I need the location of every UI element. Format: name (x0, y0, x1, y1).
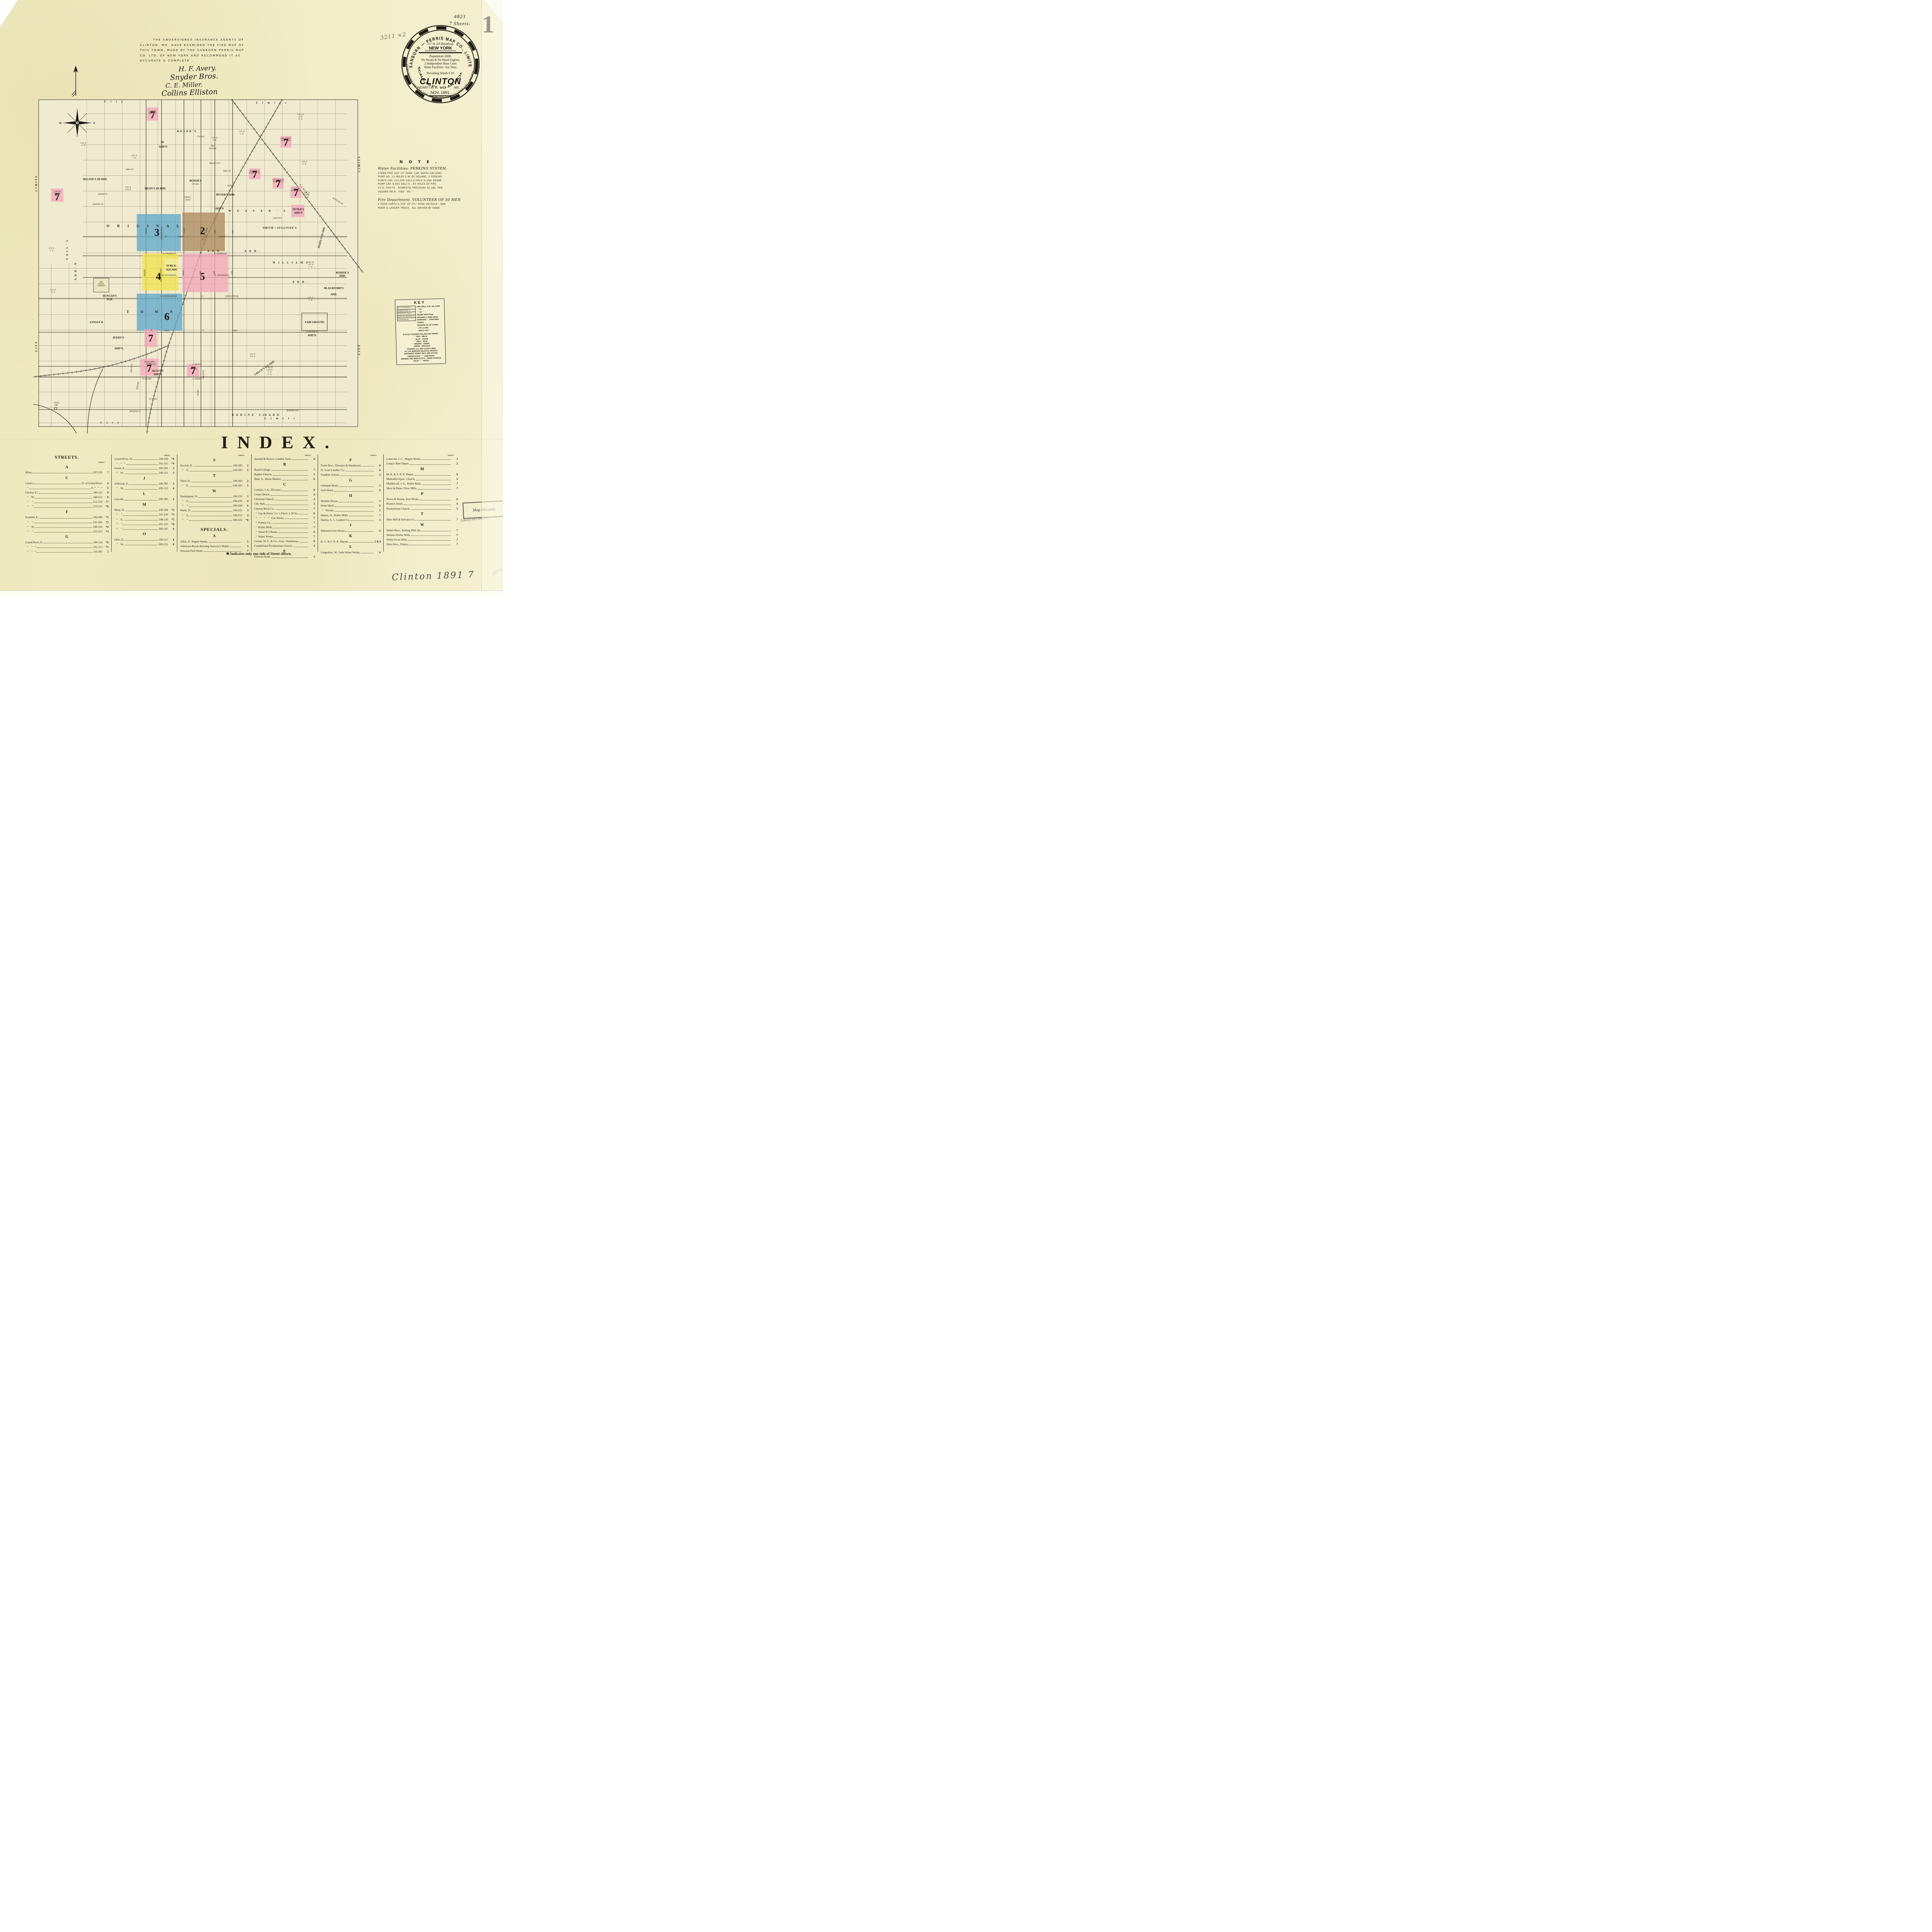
index-entry: “ Street R’y Barns,6 (254, 530, 315, 534)
index-column-3: SHEETSSecond, N.,100-3052 “ S.,100-3055T… (177, 454, 251, 552)
map-label: A D D ' N (74, 262, 77, 281)
map-label: 7 FR. D. (308, 264, 314, 265)
sheet-column-label: SHEET (254, 454, 311, 456)
sheet-column-label: SHEET (321, 454, 377, 456)
map-label: LINGLE & (90, 321, 104, 324)
map-label: ADD'N (215, 207, 224, 210)
map-label: E. FRANKLIN (214, 253, 226, 255)
map-label: CEMETERY (97, 285, 105, 287)
paper-bottom-edge (0, 590, 503, 597)
index-entry: Gerhardt Hotel,5 (321, 484, 381, 487)
index-entry: Tebo Mill & Elevator Co.,7 (386, 518, 458, 521)
map-label: O R I G I N A L (107, 224, 182, 228)
map-label: 7 FR. CH. (297, 114, 304, 116)
map-label: BOYER'S (177, 130, 197, 133)
map-label: MEAN'S 2D ADD. (145, 187, 166, 190)
index-entry: Clinton Brick Co.,7 (254, 507, 315, 510)
map-label: 7 FR. D. (308, 297, 314, 299)
map-label: R. MILL. (146, 363, 153, 365)
key-symbol-row: STEAM BOILER (398, 318, 415, 321)
map-label: LIMITS (358, 155, 361, 172)
index-entry: “ “101-305*2 (25, 520, 109, 524)
stamp-hose: 2 Independent Hose Carts (425, 62, 457, 65)
index-entry: “ “212-230*7 (25, 500, 109, 503)
map-label: SQUARE (166, 268, 177, 271)
index-entry: “ Water Works,7 (254, 535, 315, 538)
map-label: 5 (200, 271, 205, 282)
index-letter: C (25, 476, 109, 480)
index-entry: “ “ “ “ Gas Works,7 (254, 516, 315, 520)
sheet-column-label: SHEET (180, 454, 245, 456)
index-entry: Baptist Church,5 (254, 473, 315, 476)
stamp-county: HENRY CO. (417, 85, 434, 89)
index-column-4: SHEETAurand & Brown, Lumber Yard,6BBaird… (251, 454, 318, 552)
map-label: BOYER'S (190, 179, 202, 182)
map-label: ROLL'G MILL (281, 139, 291, 141)
note-line: 2 HOSE CARTS & 550' OF 2½" HOSE ON EACH … (378, 203, 461, 206)
index-entry: Centre Block,4 (254, 493, 315, 496)
index-entry: Franklin, E.,100-306*5 (25, 515, 109, 519)
map-label: 6 ″ B. (299, 118, 303, 120)
map-label: GREEN (218, 236, 225, 238)
index-entry: Western Roller Mills,7 (386, 533, 458, 537)
index-entry: Blatt, S., Horse Market,6 (254, 477, 315, 481)
index-entry: “ “101-315*3 (25, 530, 109, 533)
map-label: A D D . (293, 281, 309, 284)
note-line: PUMPS CAP. 125,000 GALL'S EACH & ONE DEA… (378, 180, 461, 182)
map-label: 2 FR. D. (49, 247, 55, 249)
map-label: 2 FR. B. (250, 355, 255, 357)
map-label: FAIR GROUND (305, 321, 324, 324)
index-entry: Green, E.,100-3052 (114, 466, 174, 470)
index-entry: Lebscom, J. C., Wagon Works,5 (386, 457, 458, 461)
index-letter: M (386, 467, 458, 471)
map-label: ADD. (339, 274, 346, 277)
map-label: POTTERY CO. (291, 190, 301, 192)
map-label: ALLEN'S (152, 369, 163, 372)
map-label: E (94, 122, 95, 125)
index-entry: “ Woods,2 (321, 509, 381, 512)
index-entry: Grand River, W.,100-230*6 (114, 457, 174, 461)
key-symbol-table: NO. OF STORIES 3SHINGLE ROOF ×COMPOST'N … (397, 306, 416, 321)
key-title: KEY (397, 300, 442, 305)
note-line: 55 D. HYD'TS . DOMESTIC PRESSURE 40 LBS.… (378, 187, 461, 189)
map-label: BLACKFORD'S (324, 287, 344, 290)
index-letter: J (114, 476, 174, 481)
map-label: MEAN'S (185, 196, 191, 198)
statement-lines: THE UNDERSIGNED INSURANCE AGENTS OFCLINT… (140, 38, 260, 62)
map-label: 6 ″ B. (303, 163, 307, 165)
note-line: SQUARE INCH . FIRE ″ 80 ″ ″ (378, 191, 461, 193)
note-title: N O T E . (378, 160, 461, 164)
index-entry: “ “ “116-3055 (25, 550, 109, 553)
map-label: ADD. (331, 293, 337, 296)
note-line: PUMP HO. 1¼ MILES S.W. OF SQUARE, 2 PERK… (378, 176, 461, 178)
map-label: W. HENRY (142, 378, 152, 380)
index-entry: Grand River, E.,100-114*6 (25, 541, 109, 544)
index-letter: I (321, 523, 381, 527)
map-label: STAND (54, 402, 59, 404)
map-label: V A I L ' S (66, 240, 69, 260)
map-label: 7 (148, 333, 153, 344)
key-row: WINDOWS ″ - SHUTTERS (417, 318, 443, 321)
index-entry: “ W.,100-2116 (25, 495, 109, 499)
index-entry: Middelcoff, J. G., Roller Mills,7 (386, 482, 458, 485)
map-label: 1 BR. CH. (307, 261, 315, 263)
index-entry: Lincoln,100-3052 (114, 497, 174, 501)
index-letter: L (114, 492, 174, 496)
index-letter: S (180, 458, 248, 463)
map-label: W (59, 122, 62, 125)
index-entry: “ W.,100-3154 (114, 486, 174, 490)
index-entry: “ S.,100-3055 (180, 484, 248, 487)
key-row: STABLE (417, 321, 443, 324)
map-label: B O D I N E ' S 2D A D D (232, 413, 280, 417)
map-label: E. (202, 329, 204, 332)
index-entry: Clinton, E.,100-1156 (25, 491, 109, 494)
map-label: LINCOLN (273, 217, 282, 219)
map-label: PUBLIC (167, 264, 177, 267)
index-column-1: STREETS.SHEETAAllen,207-2267CCentre,N. o… (22, 454, 111, 552)
map-label: ADD'N (159, 145, 167, 148)
map-label: ELEVATOR CO. (249, 172, 260, 174)
map-label: 2 ″ B. (133, 157, 137, 159)
stamp-town: CLINTON (420, 77, 461, 86)
index-entry: Second, N.,100-3052 (180, 464, 248, 467)
index-columns: STREETS.SHEETAAllen,207-2267CCentre,N. o… (22, 454, 464, 552)
map-label: 4 FR. D. (304, 194, 310, 196)
signatures: H. F. Avery.Snyder Bros.C. E. Miller.Col… (140, 64, 260, 96)
index-column-5: SHEETFFoote Bros., Elevator & Warehouse,… (318, 454, 383, 552)
index-entry: Main, N.,100-304*2 (114, 508, 174, 512)
map-label: CITY (35, 340, 38, 352)
map-label: PETER'S (293, 208, 304, 211)
map-label: COLLEGE (197, 136, 205, 138)
key-row: ″ 2ND & 4TH ″ (417, 329, 443, 332)
index-letter: H (321, 494, 381, 498)
index-entry: Wise Bros., Pottery,7 (386, 543, 458, 546)
note-line: Water Facilities: PERKINS SYSTEM. (378, 167, 461, 171)
note-line: HOOK & LADDER TRUCK , ALL DRIVEN BY HAND… (378, 207, 461, 209)
map-label: BRICK CO. (149, 112, 156, 114)
map-label: ADD'N (153, 373, 162, 376)
index-letter: K (321, 534, 381, 538)
map-label: 6 ″ B. (309, 266, 313, 268)
statement-line: THE UNDERSIGNED INSURANCE AGENTS OF (140, 38, 260, 41)
index-letter: B (254, 463, 315, 467)
map-label: W. TEBO (149, 398, 157, 400)
index-entry: City Hall,5 (254, 502, 315, 505)
map-label: McLANE'S 2D ADD. (83, 178, 107, 181)
map-label: 2 BR. D. (304, 192, 310, 194)
index-letter: O (114, 532, 174, 536)
index-entry: Ft. Scott Lumber Co.,6 (321, 468, 381, 472)
index-letter: A (25, 465, 109, 469)
map-label: 6 ″ B. (305, 196, 309, 198)
index-letter: F (321, 458, 381, 463)
map-label: 2 FR. D. (50, 289, 56, 291)
index-section-header: SPECIALS. (180, 527, 248, 532)
map-label: 3 FR. B. (125, 189, 131, 190)
index-letter: G (321, 478, 381, 483)
map-label: 2 ″ D. (268, 371, 272, 373)
map-label: 3RD (214, 230, 216, 234)
key-color-list: B'LD'GS COLORED YELLOW ARE FRAME″ ″ RED … (398, 332, 444, 362)
key-row: WINDOW IN 1ST STORY (417, 324, 443, 327)
index-entry: Carlisle, J. A., Elevator,6 (254, 488, 315, 492)
map-label: WATER. (144, 269, 146, 277)
map-label: E. JEFFERSON, (214, 274, 229, 277)
map-label: 2 FR. D. (131, 155, 138, 156)
index-entry: Hurley, A. J., Lumber Co.,5 (321, 518, 381, 522)
map-label: COLLEGE. (189, 368, 197, 370)
note-line: PUMP CAP. 9,000 GALL'S . 9½ MILES OF PIP… (378, 183, 461, 185)
map-label: 4TH ADD (192, 183, 199, 185)
key-wall-list: FIRE WALL 6 IN. AB. ROOF″ ″ 12 ″ ″″ ″ 18… (417, 305, 443, 332)
index-entry: “ S.,100-2314 (180, 514, 248, 517)
map-label: W I L L I A M S (273, 261, 309, 264)
index-entry: “ S.,100-226*5 (114, 518, 174, 521)
index-entry: Allen,207-2267 (25, 471, 109, 474)
index-entry: “ W.,100-3113 (114, 471, 174, 474)
index-letter: A (180, 534, 248, 538)
index-entry: Industrial Iron Works,6 (321, 529, 381, 532)
index-entry: Centre,N. of Grand River4 (25, 481, 109, 485)
map-label: W. (165, 236, 167, 238)
map-label: GREEN (177, 236, 184, 238)
map-label: 4 ″ B. (82, 145, 86, 146)
map-label: 2 FR. D. (250, 353, 256, 355)
index-column-6: SHEETLebscom, J. C., Wagon Works,5Lemp’s… (383, 454, 461, 552)
map-label: 4TH (231, 270, 233, 275)
map-label: OHIO (232, 330, 238, 332)
map-label: WATER (145, 228, 148, 235)
water-note: N O T E . Water Facilities: PERKINS SYST… (378, 160, 461, 211)
index-entry: Hotel Shull,6 (321, 504, 381, 507)
index-entry: “ “300-5096 (180, 504, 248, 507)
map-label: CLINTON ST. (306, 331, 318, 333)
map-key: KEY NO. OF STORIES 3SHINGLE ROOF ×COMPOS… (395, 298, 446, 365)
index-entry: Jefferson, E.,100-3055 (114, 482, 174, 485)
map-label: A D D . (207, 250, 224, 253)
statement-line: CO. LTD. OF NEW YORK AND RECOMMEND IT AS (140, 54, 260, 57)
map-label: SUB. (107, 298, 113, 301)
map-label: 1 FR.CH. (266, 369, 273, 371)
map-label: MAIN (183, 228, 185, 233)
note-line: STAND PIPE 120' 10' DIAM. CAP. 80000 GAL… (378, 172, 461, 175)
map-label: C i t y (104, 100, 124, 103)
map-label: 2D ADD'N (209, 148, 216, 150)
index-entry: Planters Hotel,6 (386, 502, 458, 505)
index-entry: “ “300-422*6 (180, 518, 248, 522)
map-label: 3RD (213, 271, 216, 275)
map-label: 2 (200, 225, 205, 236)
map-label: 6 ″ D. (299, 116, 303, 118)
index-title: INDEX. (193, 432, 357, 452)
index-entry: Gulf Hotel,6 (321, 488, 381, 492)
index-entry: Anheuser-Busch Brewing Associa’n Depot,3 (180, 544, 248, 548)
map-label: PIPE. (54, 404, 58, 406)
map-label: 6 (165, 311, 170, 322)
map-label: CITY (358, 344, 361, 355)
statement-line: ACCURATE & COMPLETE . (140, 59, 260, 62)
map-label: MILL ST. (126, 168, 134, 171)
index-letter: T (386, 512, 458, 516)
map-label: BODINE'S (336, 271, 349, 274)
index-entry: Christian Church,2 (254, 497, 315, 501)
index-entry: “S. “ “ “6 (25, 486, 109, 490)
key-row: FIRE WALL 6 IN. AB. ROOF (417, 305, 442, 308)
map-label: COLLEGE (202, 370, 205, 379)
key-row: OPENING & IRON DOOR (417, 316, 443, 318)
map-label: BENTON ST. (129, 410, 141, 413)
map-label: ADD'N. (114, 347, 124, 350)
index-entry: Aurand & Brown, Lumber Yard,6 (254, 457, 315, 461)
key-row: ″ ″ 18 ″ ″ (417, 310, 443, 313)
map-label: 5 FR. D. (212, 137, 218, 139)
index-entry: M. K. & T. R. R. Depot,6 (386, 473, 458, 476)
index-entry: “ S.,100-3055 (180, 468, 248, 472)
index-entry: “ W.,100-2316 (114, 543, 174, 546)
stamp-city: NEW YORK (429, 46, 452, 51)
city-map: C i t yL i m i t sLIMITSCITYLIMITSCITYC … (33, 98, 363, 434)
index-letter: F (25, 510, 109, 514)
key-row: ″ ″ 12 ″ ″ (417, 308, 442, 310)
map-label: LIMITS (35, 175, 38, 191)
stamp-date: NOV. 1891. (430, 91, 450, 95)
index-entry: “ Gas & Electr. Co.’s Electr. L.W’ks,6 (254, 512, 315, 515)
sheet-column-label: SHEET (114, 454, 170, 456)
index-entry: Crome, W. F., & Co., Groc. Warehouse,6 (254, 539, 315, 543)
map-label: ADD'N (294, 211, 303, 214)
index-letter: P (386, 492, 458, 496)
map-label: 7 FR. D. (301, 161, 308, 163)
map-label: 2 ″ B. (50, 250, 54, 252)
map-label: BODINE AVE. (287, 410, 299, 412)
map-label: W. (150, 329, 152, 332)
index-entry: Hunter, H., Roller Mills,7 (321, 514, 381, 517)
paper-tear-top-left (0, 0, 18, 27)
map-label: L i m i t s (256, 101, 288, 104)
sanborn-map-sheet: 4823 7 Sheets. 1 3211 ×2 SANBORN — PERRI… (0, 0, 503, 597)
map-label: DUNCAN'S (103, 294, 117, 298)
sheet-column-label: SHEET (386, 454, 454, 456)
north-arrow-icon (68, 65, 83, 98)
stamp-address: 117 & 119 Broadway (427, 42, 454, 46)
map-label: ELM ST. (227, 185, 235, 187)
map-label: 4 (156, 271, 161, 282)
index-entry: “ Roller Mills,7 (254, 526, 315, 529)
map-label: 5 ″ B. (309, 299, 313, 301)
statement-line: CLINTON, MO. HAVE EXAMINED THE FIRE MAP … (140, 43, 260, 47)
map-label: ADD'N (185, 199, 190, 201)
map-label: WASHINGTON. (161, 226, 163, 240)
map-label: W E A V E R ' S (228, 209, 287, 213)
map-label: 2 ″ B. (268, 373, 272, 375)
map-label: E. HENRY (192, 378, 202, 380)
index-footnote: ✱ Indicates only one side of Street show… (178, 552, 340, 556)
map-label: AVERY (197, 389, 199, 396)
map-label: A D D . (245, 250, 261, 253)
note-line: ″ ″ (378, 194, 461, 197)
map-label: WALNUT ST. (209, 162, 220, 165)
index-entry: Water, N.,100-2313 (180, 509, 248, 512)
map-label: ELECTRIC CO. (273, 181, 284, 183)
map-label: 1 BR.CH. (266, 366, 273, 368)
map-label: MILL ST. (223, 170, 231, 172)
map-label: 4TH (231, 230, 234, 234)
index-entry: Franklin School,2 (321, 473, 381, 476)
index-entry: “ “ “101-115*5 (25, 545, 109, 549)
index-letter: W (386, 523, 458, 527)
index-letter: M (114, 503, 174, 507)
stamp-state: MO. (453, 85, 459, 89)
index-entry: “ “213-231*6 (25, 505, 109, 508)
map-label: MILLS. (55, 194, 60, 196)
index-column-2: SHEETGrand River, W.,100-230*6 “ “ “101-… (111, 454, 177, 552)
publisher-stamp: SANBORN — PERRIS MAP CO., LIMITED COPYRI… (400, 24, 481, 104)
index-letter: G (25, 535, 109, 539)
statement-line: THIS TOWN, MADE BY THE SANBORN-PERRIS MA… (140, 48, 260, 52)
index-entry: K. C. & S. R. R. Depots,2 & 6 (321, 540, 381, 543)
index-entry: “ W.,100-316*4 (25, 525, 109, 529)
index-entry: Pierce & Hanna, Iron Works,6 (386, 497, 458, 501)
stamp-winds: Prevailing Winds S.W. (427, 71, 455, 75)
map-label: 3 FR. D. (125, 186, 131, 188)
map-label: 3D (161, 141, 164, 144)
map-label: W. FRANKLIN (163, 253, 176, 255)
note-line: Fire Department. VOLUNTEER OF 50 MEN (378, 198, 461, 202)
index-entry: Third, N.,100-3052 (180, 479, 248, 483)
map-label: MAIN (182, 270, 185, 276)
sheet-column-label: SHEET (25, 461, 105, 463)
stamp-population: Population 5000. (429, 54, 452, 58)
map-label: 5 ″ B. (213, 139, 217, 141)
index-letter: T (180, 474, 248, 478)
index-entry: White Swan Mills,7 (386, 538, 458, 541)
index-entry: “ S.,100-2354 (180, 499, 248, 503)
index-entry: Heckler House,5 (321, 499, 381, 503)
map-label: BOYER'S ADD. (216, 193, 235, 196)
agents-statement: THE UNDERSIGNED INSURANCE AGENTS OFCLINT… (140, 38, 260, 96)
index-entry: Presbyterian Church,5 (386, 507, 458, 510)
index-entry: “ “300-5076 (114, 527, 174, 531)
map-label: PINE (211, 145, 214, 147)
sheet-block (182, 253, 228, 292)
map-label: E. (201, 295, 204, 298)
map-label: GRAVEL ST. (93, 203, 104, 206)
map-label: W. JEFFERSON, (162, 274, 177, 277)
map-label: 3 ″ B. (51, 291, 56, 293)
handwritten-title: Clinton 1891 7 (392, 570, 475, 582)
index-entry: Baird College,7 (254, 468, 315, 471)
index-entry: Lemp’s Beer Depot,2 (386, 462, 458, 465)
index-letter: C (254, 483, 315, 487)
index-entry: Ohio, E.,100-1176 (114, 538, 174, 541)
key-row: FRAME PARTITION (417, 313, 443, 316)
map-label: SMITH • SULLIVAN'S (263, 226, 297, 230)
index-entry: “ Pottery Co.,7 (254, 521, 315, 524)
map-label: L i m i t s (265, 417, 297, 420)
index-entry: Myer & Butte, Flour Mills,7 (386, 486, 458, 490)
index-entry: Weber Bros., Rolling Mill, &c.,7 (386, 529, 458, 532)
index-entry: Foote Bros., Elevator & Warehouse,6 (321, 464, 381, 467)
map-label: 3 FR. D. (80, 142, 87, 144)
note-lines: Water Facilities: PERKINS SYSTEM.STAND P… (378, 167, 461, 209)
stamp-engines: No Steam & No Hand Engines (422, 58, 460, 62)
map-label: 3 ″ B. (240, 133, 244, 135)
map-label: 5 FR. D. (239, 131, 245, 133)
